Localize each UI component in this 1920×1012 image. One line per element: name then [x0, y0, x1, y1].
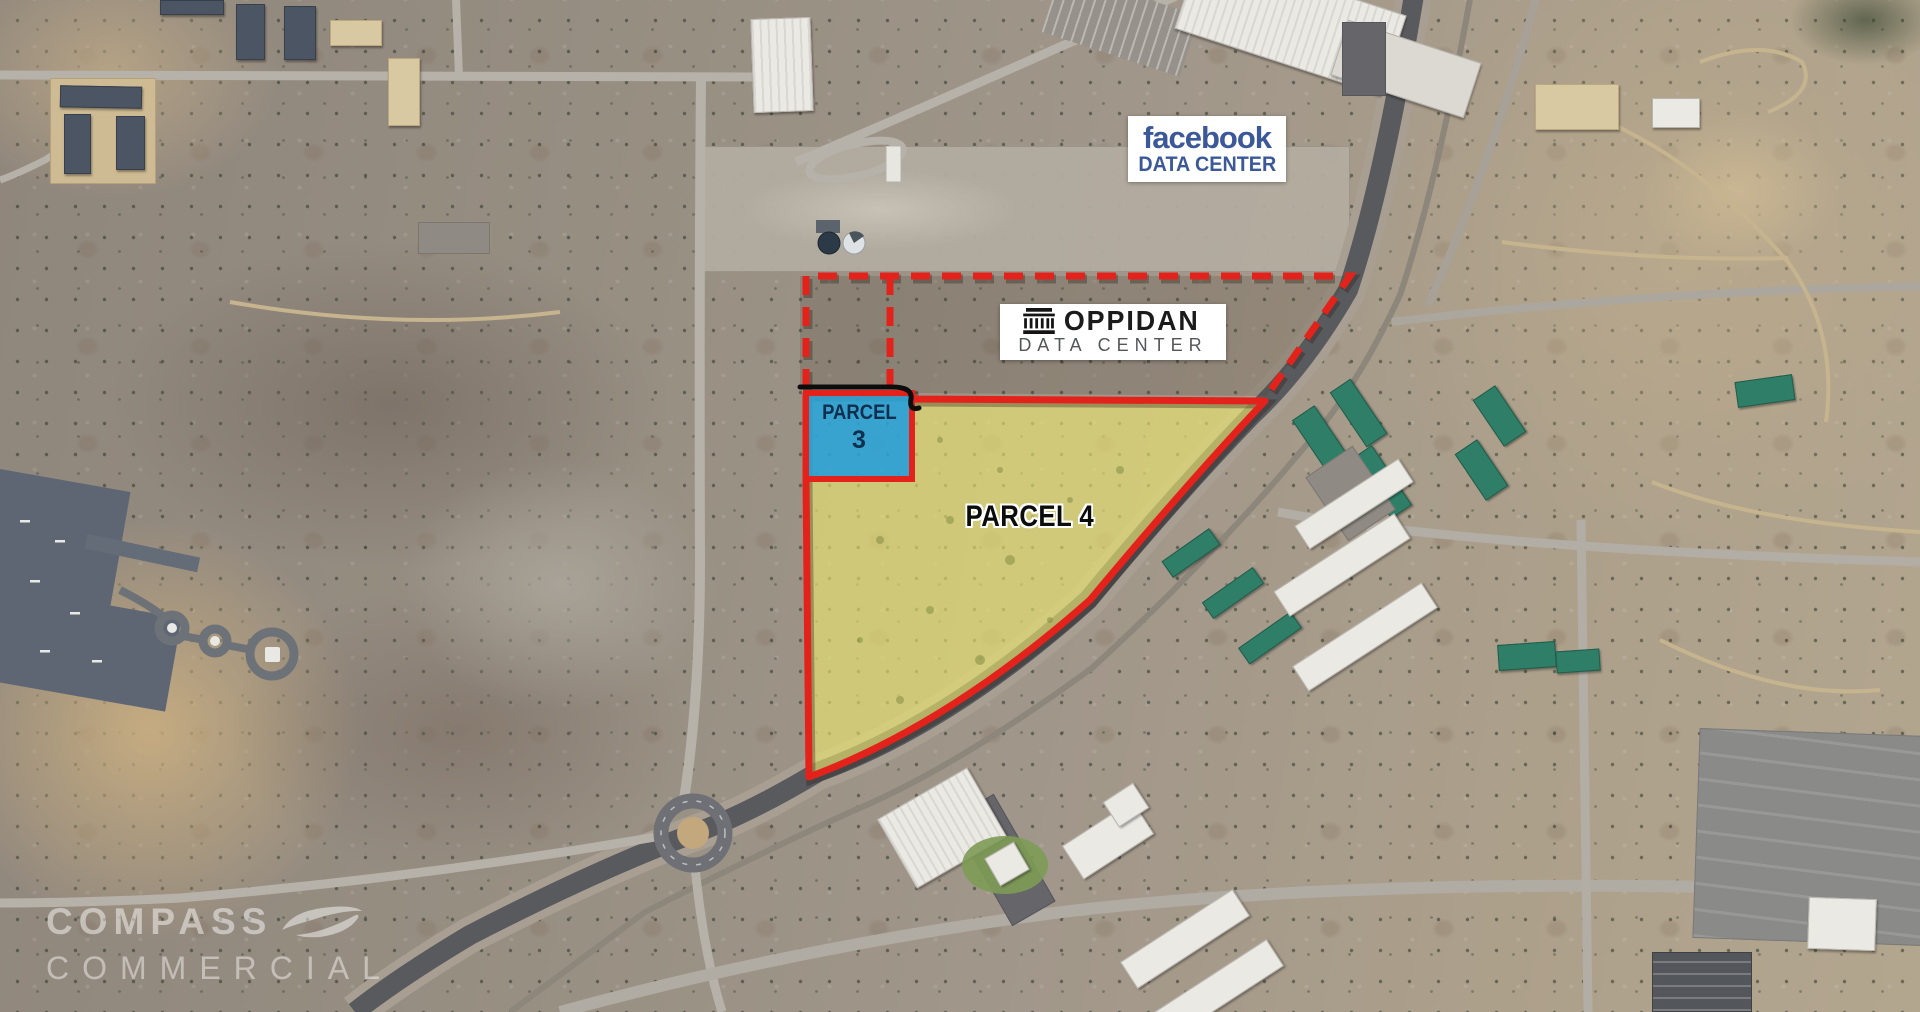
- columns-building-icon: [1023, 308, 1055, 334]
- oppidan-subtitle-text: DATA CENTER: [1018, 335, 1207, 357]
- oppidan-brand-text: OPPIDAN: [1064, 307, 1200, 335]
- parcel-3-label: PARCEL 3: [806, 400, 912, 455]
- watermark-subtitle-text: COMMERCIAL: [46, 952, 393, 984]
- facebook-data-center-label: facebook DATA CENTER: [1128, 116, 1286, 182]
- aerial-map: facebook DATA CENTER OPPIDAN DATA CENTER…: [0, 0, 1920, 1012]
- facebook-brand-text: facebook: [1143, 122, 1271, 153]
- parcel-3-number: 3: [806, 426, 912, 455]
- compass-commercial-watermark: COMPASS COMMERCIAL: [46, 903, 393, 984]
- facebook-subtitle-text: DATA CENTER: [1138, 153, 1276, 176]
- parcel-4-title: PARCEL 4: [966, 500, 1095, 534]
- oppidan-data-center-label: OPPIDAN DATA CENTER: [1000, 304, 1226, 360]
- compass-swoosh-icon: [280, 904, 364, 940]
- parcel-4-label: PARCEL 4: [948, 500, 1112, 534]
- parcel-3-title: PARCEL: [822, 400, 897, 426]
- watermark-brand-text: COMPASS: [46, 903, 272, 940]
